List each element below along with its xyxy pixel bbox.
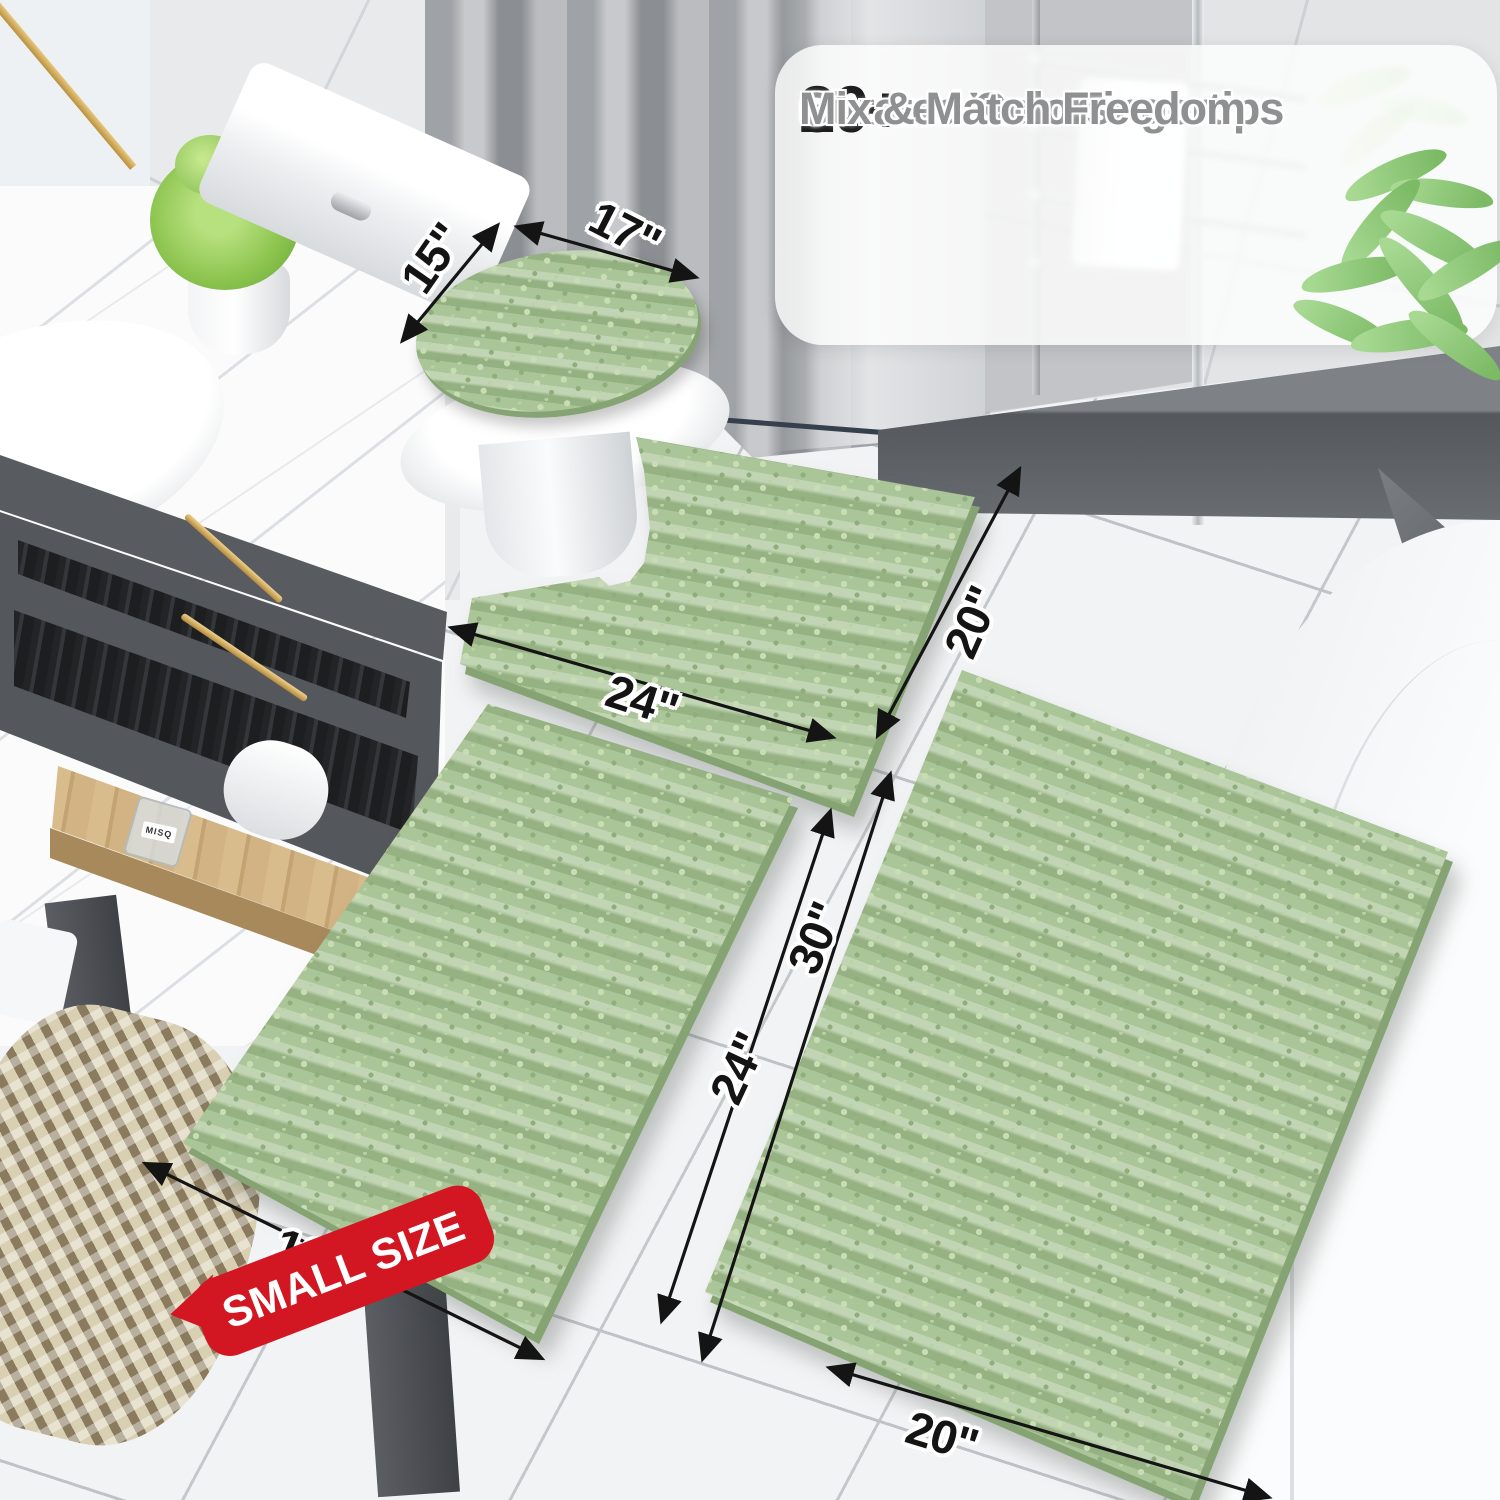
feature-label: Mix & Match Freedom: [799, 83, 1245, 135]
corner-plant: [1280, 120, 1500, 380]
product-image-bath-rug-set: MISQ: [0, 0, 1500, 1500]
